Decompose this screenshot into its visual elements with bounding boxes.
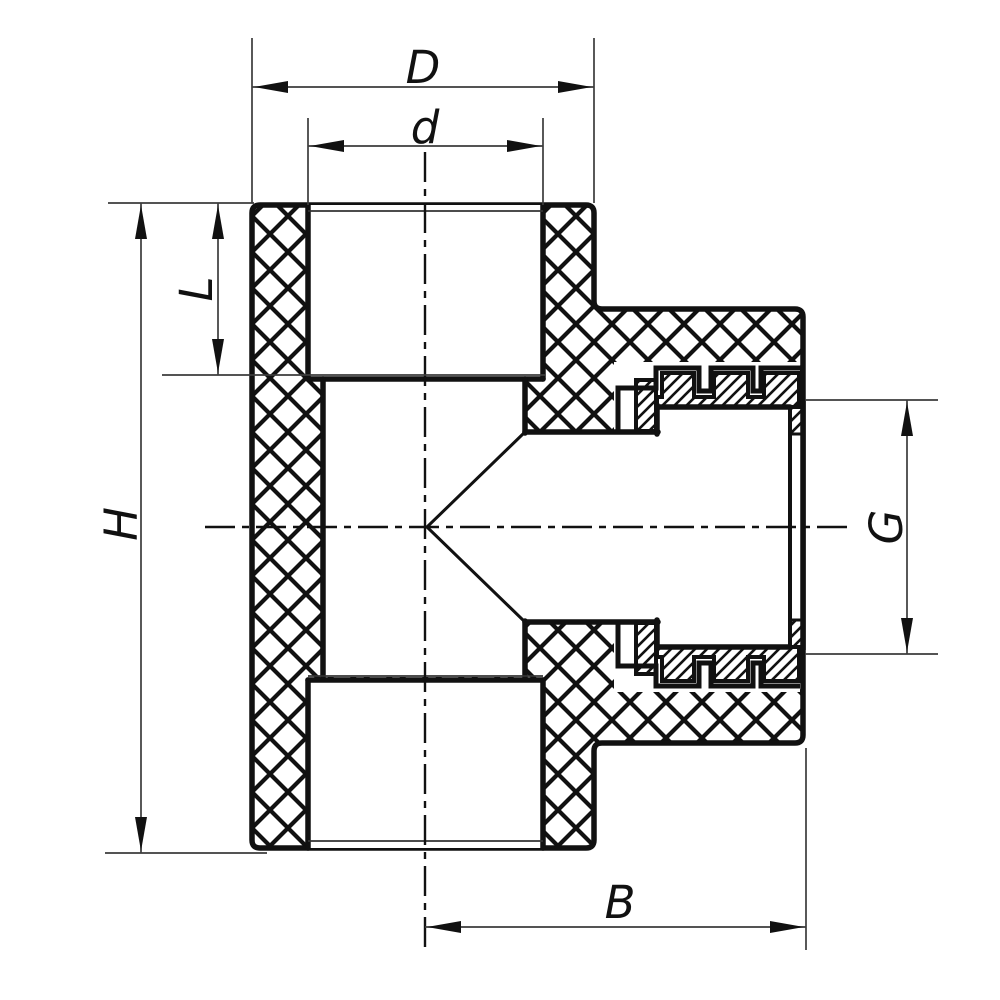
insert-thread-top xyxy=(657,373,799,407)
insert-thread-bottom xyxy=(657,647,799,681)
dim-label-D: D xyxy=(406,41,441,94)
dim-label-L: L xyxy=(170,276,223,301)
dim-label-B: B xyxy=(605,876,636,929)
tee-fitting-technical-drawing: D d L H G B xyxy=(0,0,1000,1000)
dim-label-H: H xyxy=(95,507,148,541)
dim-label-d: d xyxy=(411,101,440,154)
dim-label-G: G xyxy=(860,510,913,545)
drawing-canvas: D d L H G B xyxy=(0,0,1000,1000)
